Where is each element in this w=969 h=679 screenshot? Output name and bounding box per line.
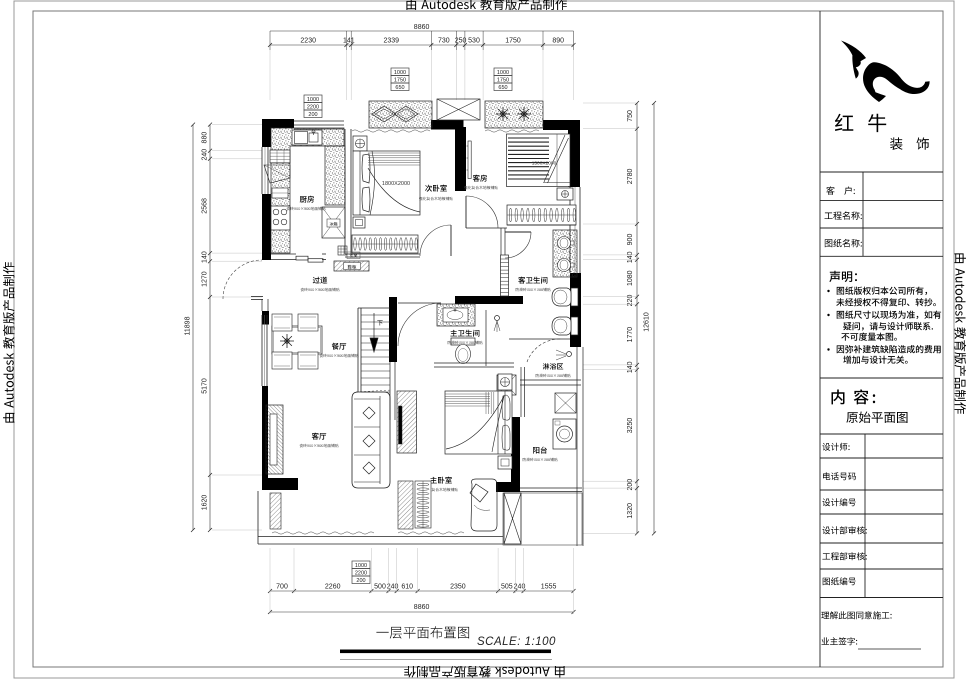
- svg-text:140: 140: [627, 361, 634, 373]
- svg-text:1750: 1750: [505, 38, 521, 45]
- svg-text:200: 200: [627, 479, 634, 491]
- svg-text:2568: 2568: [202, 198, 209, 214]
- svg-text:8860: 8860: [414, 24, 430, 31]
- svg-text:2200: 2200: [355, 570, 367, 576]
- svg-text:2200: 2200: [307, 104, 319, 110]
- svg-text:1080: 1080: [627, 270, 634, 286]
- svg-text:1320: 1320: [627, 503, 634, 519]
- svg-text:900: 900: [627, 234, 634, 246]
- svg-text:1620: 1620: [202, 495, 209, 511]
- svg-text:1000: 1000: [394, 70, 406, 76]
- svg-text:SCALE: 1:100: SCALE: 1:100: [477, 636, 556, 648]
- svg-text:500: 500: [374, 584, 386, 591]
- svg-text:1500X2000: 1500X2000: [532, 161, 557, 167]
- svg-text:880: 880: [202, 132, 209, 144]
- svg-text:5170: 5170: [202, 378, 209, 394]
- svg-text:11898: 11898: [185, 316, 192, 335]
- svg-text:140: 140: [627, 251, 634, 263]
- svg-text:1000: 1000: [497, 70, 509, 76]
- svg-text:700: 700: [276, 584, 288, 591]
- svg-text:140: 140: [202, 251, 209, 263]
- svg-text:1000: 1000: [355, 563, 367, 569]
- svg-text:1555: 1555: [541, 584, 557, 591]
- svg-text:8860: 8860: [414, 604, 430, 611]
- svg-text:200: 200: [356, 578, 365, 584]
- svg-text:250: 250: [455, 38, 467, 45]
- svg-text:2350: 2350: [450, 584, 466, 591]
- svg-text:730: 730: [438, 38, 450, 45]
- svg-text:200: 200: [308, 112, 317, 118]
- svg-text:1270: 1270: [202, 271, 209, 287]
- svg-text:890: 890: [552, 38, 564, 45]
- svg-text:12610: 12610: [644, 312, 651, 332]
- svg-text:220: 220: [627, 295, 634, 307]
- svg-text:650: 650: [498, 85, 507, 91]
- svg-text:2230: 2230: [300, 38, 316, 45]
- svg-text:2780: 2780: [627, 169, 634, 185]
- svg-text:650: 650: [395, 85, 404, 91]
- svg-text:2260: 2260: [325, 584, 341, 591]
- svg-text:610: 610: [401, 584, 413, 591]
- svg-text:505: 505: [501, 584, 513, 591]
- svg-text:141: 141: [343, 38, 355, 45]
- svg-text:530: 530: [468, 38, 480, 45]
- svg-text:1750: 1750: [497, 77, 509, 83]
- svg-text:2339: 2339: [384, 38, 400, 45]
- svg-text:1750: 1750: [394, 77, 406, 83]
- svg-text:3250: 3250: [627, 418, 634, 434]
- svg-text:240: 240: [202, 149, 209, 161]
- svg-text:1000: 1000: [307, 97, 319, 103]
- svg-text:1770: 1770: [627, 327, 634, 343]
- svg-text:1800X2000: 1800X2000: [382, 181, 410, 187]
- svg-text:750: 750: [627, 110, 634, 122]
